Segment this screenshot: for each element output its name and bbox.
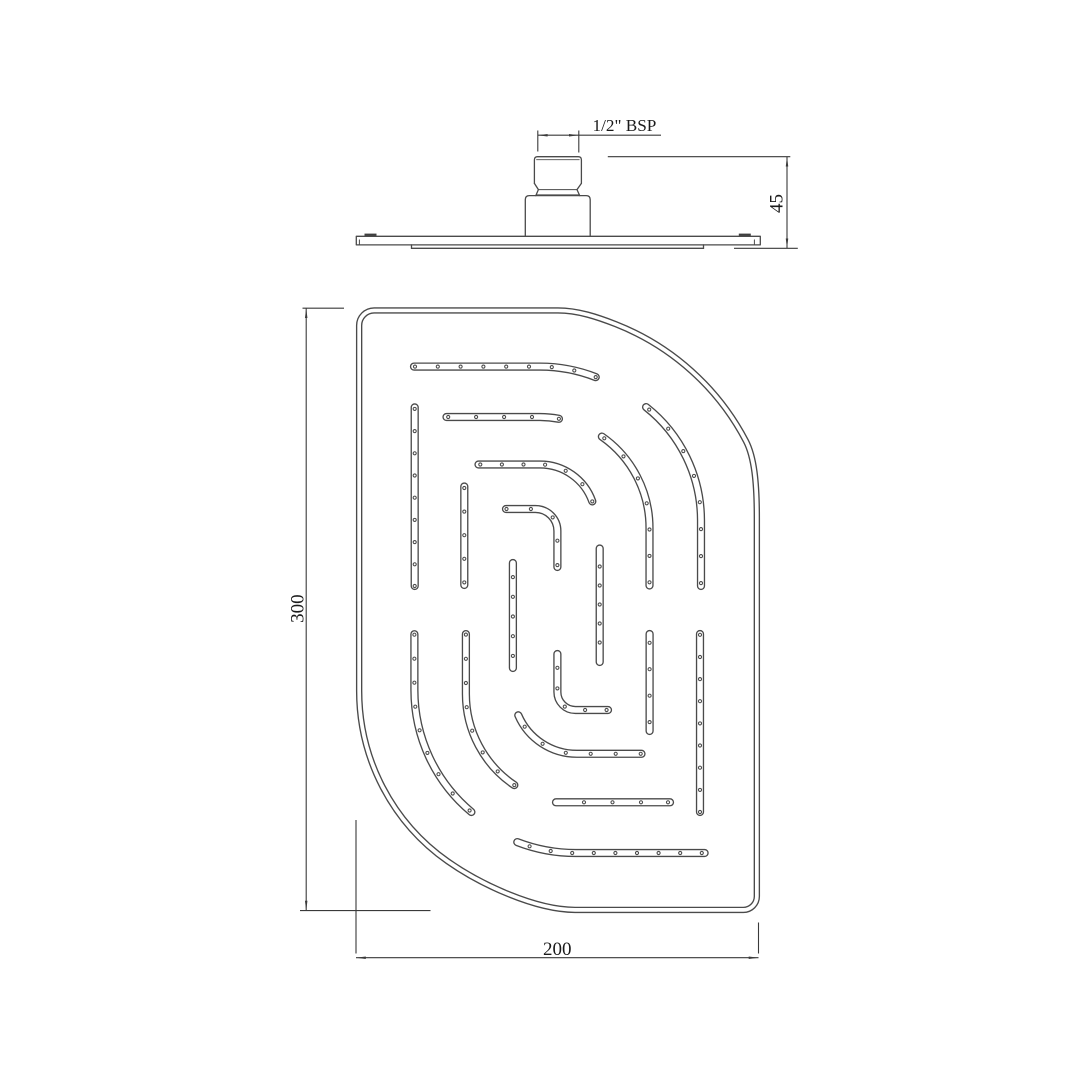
svg-text:200: 200 [543,939,572,960]
svg-text:300: 300 [287,594,308,623]
svg-text:1/2" BSP: 1/2" BSP [593,116,657,135]
svg-text:45: 45 [767,194,788,213]
